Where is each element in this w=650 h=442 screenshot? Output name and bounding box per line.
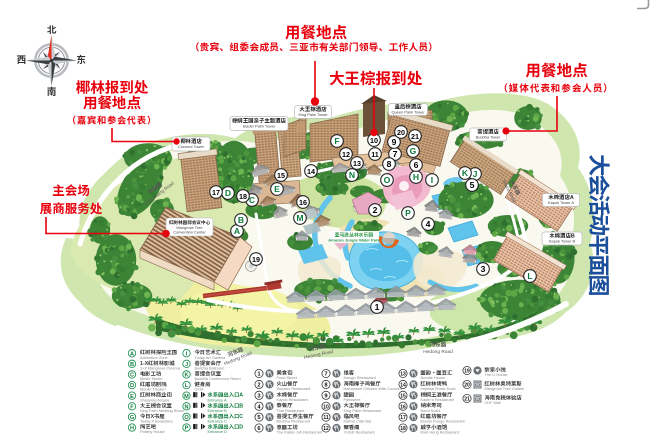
svg-text:A: A <box>130 351 134 357</box>
svg-text:The Italian Job Restaurant: The Italian Job Restaurant <box>277 430 324 435</box>
svg-text:Buddha Tower: Buddha Tower <box>476 135 502 140</box>
svg-text:B: B <box>130 362 134 368</box>
svg-text:大王棕报到处: 大王棕报到处 <box>329 67 423 89</box>
svg-text:14: 14 <box>307 167 315 176</box>
svg-text:12: 12 <box>323 426 329 432</box>
svg-text:1: 1 <box>375 302 380 312</box>
svg-text:7: 7 <box>324 372 327 378</box>
svg-text:Queen Palm Tower: Queen Palm Tower <box>391 110 425 115</box>
svg-text:K: K <box>462 168 469 178</box>
svg-text:E: E <box>274 184 280 194</box>
svg-text:D: D <box>225 188 231 198</box>
svg-text:N: N <box>184 404 188 410</box>
svg-text:L: L <box>527 271 532 281</box>
svg-text:CDF Mall: CDF Mall <box>485 400 501 405</box>
svg-text:A: A <box>234 226 240 236</box>
svg-text:J: J <box>185 362 188 368</box>
svg-text:I: I <box>431 175 433 185</box>
svg-text:北: 北 <box>47 22 58 36</box>
svg-text:18: 18 <box>400 426 406 432</box>
svg-text:Entrance D: Entrance D <box>208 429 228 434</box>
svg-text:13: 13 <box>400 372 406 378</box>
svg-text:用餐地点: 用餐地点 <box>83 92 141 113</box>
svg-text:Convention Center: Convention Center <box>173 230 206 235</box>
svg-text:Coconut Tower: Coconut Tower <box>178 144 205 149</box>
svg-text:L: L <box>185 383 189 389</box>
svg-text:H: H <box>130 426 134 432</box>
svg-text:Elader Palm Tower: Elader Palm Tower <box>243 124 276 129</box>
svg-text:Hedong Road: Hedong Road <box>423 349 453 355</box>
svg-text:16: 16 <box>400 404 406 410</box>
svg-text:10: 10 <box>323 404 329 410</box>
svg-text:（嘉宾和参会代表）: （嘉宾和参会代表） <box>67 113 157 127</box>
svg-text:Kapok Tower B: Kapok Tower B <box>549 239 576 244</box>
svg-text:N: N <box>349 170 355 180</box>
svg-text:2: 2 <box>373 205 378 215</box>
svg-text:15: 15 <box>400 393 406 399</box>
svg-text:16: 16 <box>299 198 307 207</box>
svg-text:Amazon Jungle Water Park: Amazon Jungle Water Park <box>328 237 380 242</box>
svg-text:东: 东 <box>76 52 86 66</box>
svg-text:G: G <box>410 146 417 156</box>
svg-text:西: 西 <box>17 52 27 66</box>
svg-text:河东路: 河东路 <box>429 341 447 349</box>
svg-text:13: 13 <box>353 159 361 168</box>
svg-text:Mangrove Tree Outlets: Mangrove Tree Outlets <box>485 386 525 391</box>
svg-text:Pottery House: Pottery House <box>140 429 165 434</box>
svg-text:10: 10 <box>370 136 378 145</box>
svg-text:F: F <box>334 136 339 146</box>
svg-text:B: B <box>238 215 244 225</box>
svg-text:展商服务处: 展商服务处 <box>40 198 103 217</box>
svg-text:J: J <box>473 169 478 179</box>
svg-text:21: 21 <box>411 132 419 141</box>
svg-text:19: 19 <box>252 255 260 264</box>
svg-text:（媒体代表和参会人员）: （媒体代表和参会人员） <box>498 81 613 95</box>
svg-text:20: 20 <box>464 383 470 389</box>
svg-text:12: 12 <box>342 150 350 159</box>
svg-text:7: 7 <box>393 149 398 159</box>
svg-text:King Palm Tower: King Palm Tower <box>298 112 328 117</box>
svg-text:The Li House: The Li House <box>485 372 508 377</box>
svg-text:D: D <box>130 383 134 389</box>
svg-text:9: 9 <box>392 137 397 147</box>
svg-text:6: 6 <box>414 160 419 170</box>
svg-text:18: 18 <box>239 192 247 201</box>
svg-text:11: 11 <box>323 415 329 421</box>
svg-text:20: 20 <box>397 128 405 137</box>
svg-text:17: 17 <box>212 188 220 197</box>
svg-text:O: O <box>184 415 189 421</box>
svg-text:2: 2 <box>257 383 260 389</box>
svg-text:M: M <box>296 213 303 223</box>
svg-text:C: C <box>130 373 134 379</box>
svg-text:17: 17 <box>400 415 406 421</box>
svg-text:G: G <box>130 415 134 421</box>
svg-text:（贵宾、组委会成员、三亚市有关部门领导、工作人员）: （贵宾、组委会成员、三亚市有关部门领导、工作人员） <box>190 40 439 54</box>
svg-text:用餐地点: 用餐地点 <box>525 59 587 81</box>
svg-text:Kian Heng Restaurant: Kian Heng Restaurant <box>421 430 460 435</box>
svg-text:南: 南 <box>47 84 57 98</box>
svg-text:H: H <box>413 172 419 182</box>
svg-text:M: M <box>184 394 189 400</box>
svg-text:K: K <box>184 373 188 379</box>
svg-text:5: 5 <box>470 180 475 190</box>
svg-text:P: P <box>185 426 189 432</box>
svg-text:19: 19 <box>464 369 470 375</box>
svg-text:P: P <box>405 208 411 218</box>
svg-text:大会活动平面图: 大会活动平面图 <box>584 154 616 296</box>
svg-text:3: 3 <box>481 264 486 274</box>
svg-text:YUGE Restaurant: YUGE Restaurant <box>344 430 376 435</box>
svg-text:4: 4 <box>426 219 431 229</box>
svg-text:11: 11 <box>371 150 379 159</box>
svg-text:14: 14 <box>400 383 406 389</box>
svg-text:15: 15 <box>277 171 285 180</box>
svg-text:GYM: GYM <box>195 387 204 392</box>
svg-text:主会场: 主会场 <box>52 180 90 199</box>
svg-text:Kapok Tower A: Kapok Tower A <box>548 200 574 205</box>
svg-text:E: E <box>130 394 134 400</box>
svg-text:F: F <box>130 404 134 410</box>
svg-text:8: 8 <box>387 159 392 169</box>
svg-text:21: 21 <box>464 397 470 403</box>
svg-text:O: O <box>384 175 391 185</box>
